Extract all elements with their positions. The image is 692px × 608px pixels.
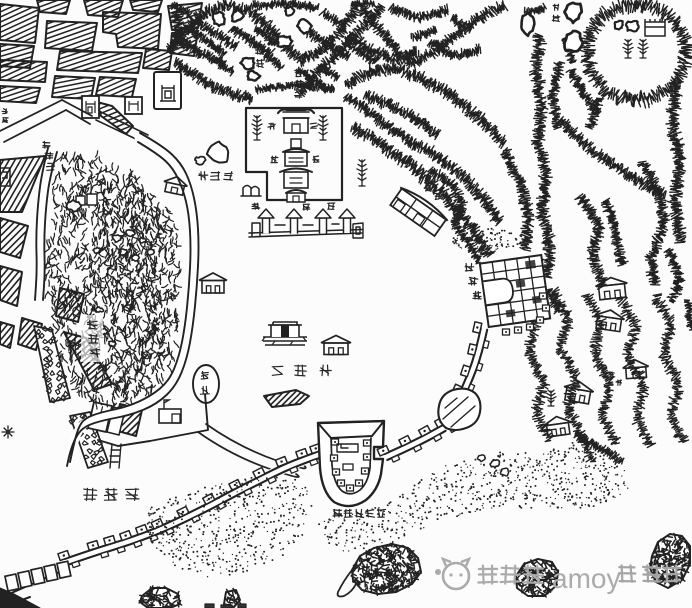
- svg-text:amoy: amoy: [552, 563, 620, 594]
